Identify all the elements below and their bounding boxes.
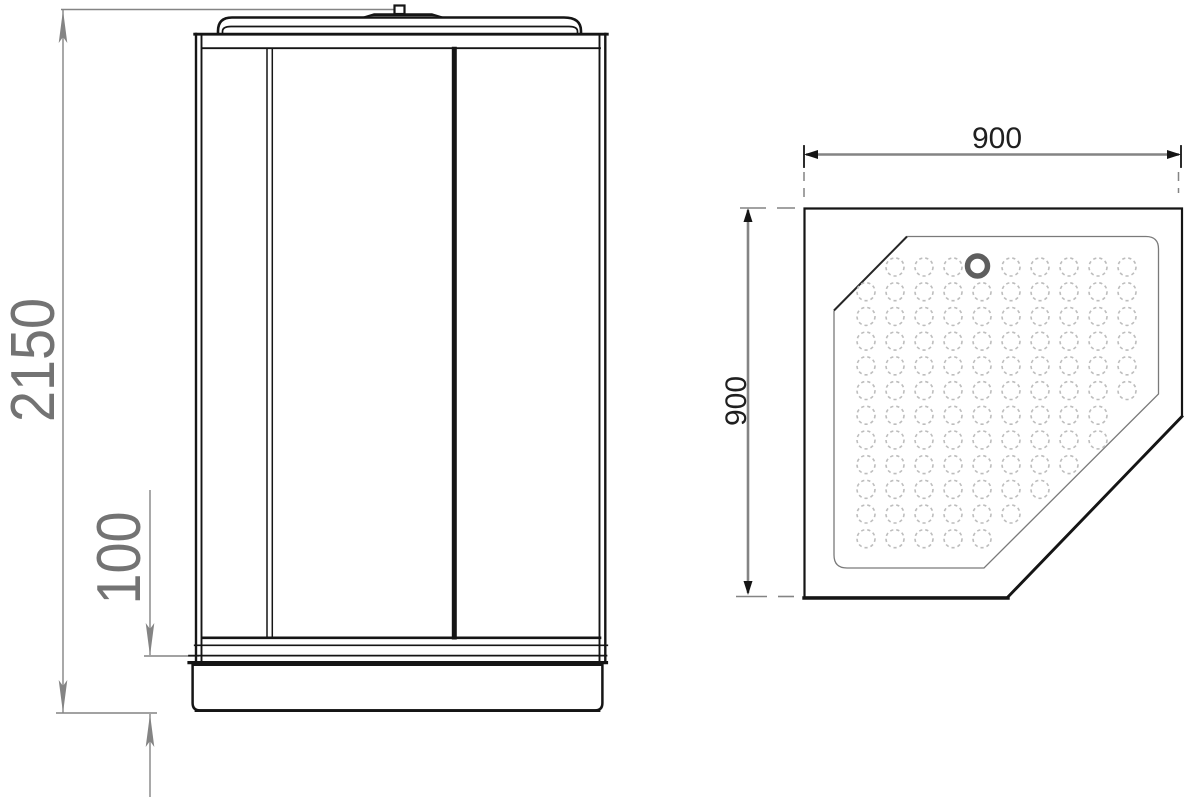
tray-texture-dot (944, 406, 962, 424)
tray-texture-dot (886, 480, 904, 498)
tray-texture-dot (1089, 307, 1107, 325)
tray-texture-dot (1089, 406, 1107, 424)
tray-texture-dot (944, 456, 962, 474)
tray-texture-dot (973, 456, 991, 474)
tray-texture-dot (1002, 307, 1020, 325)
dim-label-overall-height: 2150 (0, 298, 68, 422)
arrow-up-icon (744, 208, 753, 222)
tray-texture-dot (1089, 382, 1107, 400)
tray-texture-dot (915, 332, 933, 350)
tray-texture-dot (857, 480, 875, 498)
tray-texture-dot (973, 406, 991, 424)
tray-texture-dot (915, 406, 933, 424)
tray-texture-dot (973, 530, 991, 548)
tray-texture-dot (1031, 307, 1049, 325)
tray-texture-dot (1089, 283, 1107, 301)
tray-texture-dot (973, 505, 991, 523)
tray-texture-dot (1002, 332, 1020, 350)
tray-texture-dot (915, 382, 933, 400)
tray-texture-dot (886, 357, 904, 375)
tray-texture-dot (915, 530, 933, 548)
tray-texture-dot (973, 480, 991, 498)
tray-texture-dot (915, 357, 933, 375)
tray-texture-dot (857, 406, 875, 424)
tray-texture-dot (886, 307, 904, 325)
tray-texture-dot (944, 530, 962, 548)
tray-texture-dot (944, 382, 962, 400)
tray-texture-dot (857, 382, 875, 400)
tray-texture-dot (973, 357, 991, 375)
tray-texture-dot (886, 382, 904, 400)
top-plan-view: 900 900 (720, 122, 1182, 598)
dim-label-depth: 900 (720, 376, 753, 426)
dimension-depth: 900 (720, 208, 795, 597)
tray-texture-dot (886, 406, 904, 424)
tray-texture-dot (1089, 332, 1107, 350)
tray-texture-dot (857, 357, 875, 375)
tray-texture-dot (857, 530, 875, 548)
tray-texture-dot (915, 283, 933, 301)
dimension-tray-height: 100 (85, 490, 199, 797)
tray-texture-dot (1118, 332, 1136, 350)
tray-texture-dot (1060, 357, 1078, 375)
dimension-width: 900 (804, 122, 1181, 198)
dim-label-width: 900 (972, 122, 1022, 155)
shower-cabin-drawing: 2150 100 (0, 0, 1195, 800)
tray-texture-dot (1031, 283, 1049, 301)
tray-texture-dot (1060, 456, 1078, 474)
roof-knob (395, 6, 405, 15)
tray-texture-dot (857, 431, 875, 449)
tray-texture-dot (1002, 406, 1020, 424)
tray-texture-dot (857, 505, 875, 523)
tray-texture-dot (857, 307, 875, 325)
arrow-right-icon (1167, 150, 1181, 159)
tray-texture-dot (1118, 258, 1136, 276)
tray-texture-dot (1060, 431, 1078, 449)
tray-texture-dot (915, 258, 933, 276)
tray-texture-dot (1060, 406, 1078, 424)
tray-texture-dot (973, 332, 991, 350)
tray-texture-dot (1031, 456, 1049, 474)
tray-texture-dot (915, 431, 933, 449)
tray-texture-dot (886, 332, 904, 350)
tray-texture-dot (915, 456, 933, 474)
tray-dot-grid (857, 258, 1136, 548)
cabin-front-outline (189, 6, 607, 711)
tray-texture-dot (1118, 307, 1136, 325)
tray-texture-dot (1060, 332, 1078, 350)
tray-texture-dot (973, 307, 991, 325)
roof-inner (223, 27, 578, 34)
tray-texture-dot (1060, 307, 1078, 325)
tray-texture-dot (1089, 258, 1107, 276)
tray-outline (804, 209, 1182, 599)
tray-texture-dot (1002, 382, 1020, 400)
tray-texture-dot (1002, 480, 1020, 498)
tray-texture-dot (944, 283, 962, 301)
tray-texture-dot (1002, 456, 1020, 474)
tray-texture-dot (1031, 382, 1049, 400)
tray-texture-dot (973, 283, 991, 301)
tray-texture-dot (1002, 431, 1020, 449)
tray-texture-dot (1002, 505, 1020, 523)
tray-texture-dot (886, 530, 904, 548)
tray-texture-dot (915, 307, 933, 325)
tray-texture-dot (944, 505, 962, 523)
tray-texture-dot (1031, 258, 1049, 276)
tray-texture-dot (944, 258, 962, 276)
tray-texture-dot (944, 480, 962, 498)
tray-texture-dot (886, 431, 904, 449)
tray-texture-dot (1031, 357, 1049, 375)
tray-texture-dot (944, 357, 962, 375)
arrow-left-icon (804, 150, 818, 159)
tray-texture-dot (1031, 480, 1049, 498)
tray-texture-dot (973, 431, 991, 449)
tray-texture-dot (1089, 357, 1107, 375)
tray-inner-rim (834, 237, 1159, 569)
tray-texture-dot (1002, 357, 1020, 375)
tray-texture-dot (1118, 357, 1136, 375)
dim-label-tray-height: 100 (85, 511, 153, 604)
tray-texture-dot (915, 505, 933, 523)
tray-texture-dot (857, 456, 875, 474)
tray-texture-dot (886, 505, 904, 523)
technical-drawing-page: 2150 100 (0, 0, 1195, 800)
tray-texture-dot (1002, 283, 1020, 301)
tray-texture-dot (1060, 258, 1078, 276)
tray-outer-pentagon (805, 209, 1183, 598)
tray-texture-dot (1118, 283, 1136, 301)
tray-texture-dot (1118, 382, 1136, 400)
tray-texture-dot (1060, 382, 1078, 400)
tray-skirt (193, 665, 603, 711)
tray-texture-dot (886, 258, 904, 276)
tray-texture-dot (944, 307, 962, 325)
tray-texture-dot (915, 480, 933, 498)
tray-texture-dot (1031, 332, 1049, 350)
tray-texture-dot (1031, 406, 1049, 424)
tray-texture-dot (1089, 431, 1107, 449)
tray-texture-dot (973, 382, 991, 400)
tray-texture-dot (944, 431, 962, 449)
arrow-down-icon (744, 581, 753, 595)
tray-texture-dot (886, 283, 904, 301)
tray-outer-diagonal-edge (1008, 417, 1183, 598)
tray-texture-dot (944, 332, 962, 350)
tray-texture-dot (1002, 258, 1020, 276)
tray-texture-dot (1031, 431, 1049, 449)
drain-ring (968, 256, 988, 276)
front-elevation-view: 2150 100 (0, 6, 607, 798)
tray-texture-dot (1060, 283, 1078, 301)
tray-texture-dot (886, 456, 904, 474)
tray-texture-dot (857, 332, 875, 350)
